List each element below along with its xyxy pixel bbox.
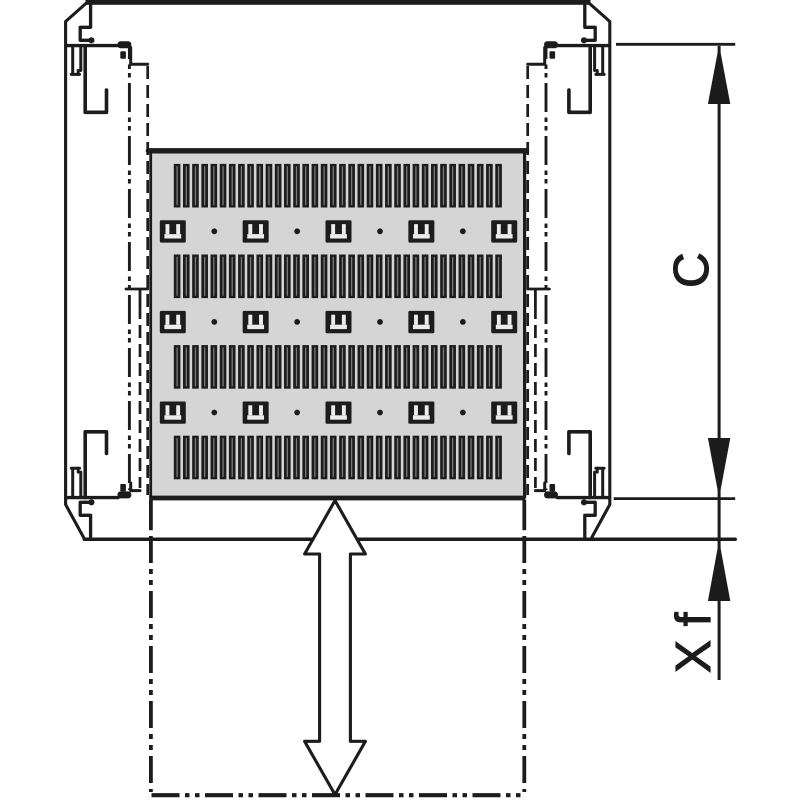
svg-text:X f: X f — [666, 612, 721, 673]
svg-text:C: C — [664, 252, 719, 288]
